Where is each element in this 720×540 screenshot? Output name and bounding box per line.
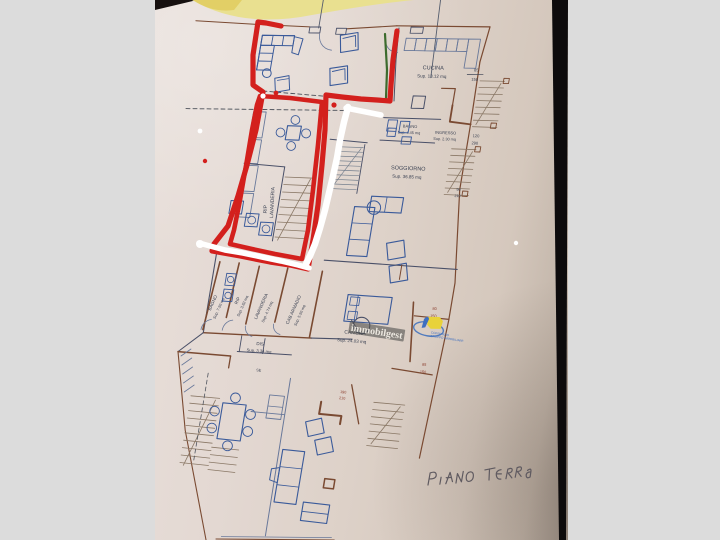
svg-text:CUCINA: CUCINA [423, 65, 445, 71]
svg-text:190: 190 [340, 390, 347, 395]
svg-text:RIP: RIP [263, 204, 269, 213]
svg-text:120: 120 [473, 133, 481, 138]
svg-text:85: 85 [422, 363, 427, 367]
svg-text:210: 210 [454, 194, 461, 198]
svg-text:150: 150 [471, 77, 479, 82]
svg-text:210: 210 [339, 396, 346, 401]
svg-text:BAGNO: BAGNO [403, 123, 418, 128]
svg-text:Sup. 13.12 mq: Sup. 13.12 mq [417, 73, 447, 79]
svg-text:SE: SE [256, 368, 262, 372]
svg-text:Sup. 24.03 mq: Sup. 24.03 mq [337, 337, 367, 344]
svg-text:SOGGIORNO: SOGGIORNO [391, 165, 426, 172]
svg-text:Sup. 2.30 mq: Sup. 2.30 mq [433, 137, 456, 142]
svg-text:DIS: DIS [256, 341, 264, 347]
svg-text:150: 150 [420, 370, 427, 375]
svg-text:90: 90 [456, 188, 460, 192]
svg-text:80: 80 [432, 307, 437, 311]
svg-text:RIP: RIP [234, 296, 242, 305]
svg-text:LAVANDERIA: LAVANDERIA [269, 186, 277, 218]
svg-text:INGRESSO: INGRESSO [435, 130, 456, 136]
svg-text:290: 290 [471, 140, 479, 145]
svg-text:Sup. 36.85 mq: Sup. 36.85 mq [392, 174, 422, 180]
